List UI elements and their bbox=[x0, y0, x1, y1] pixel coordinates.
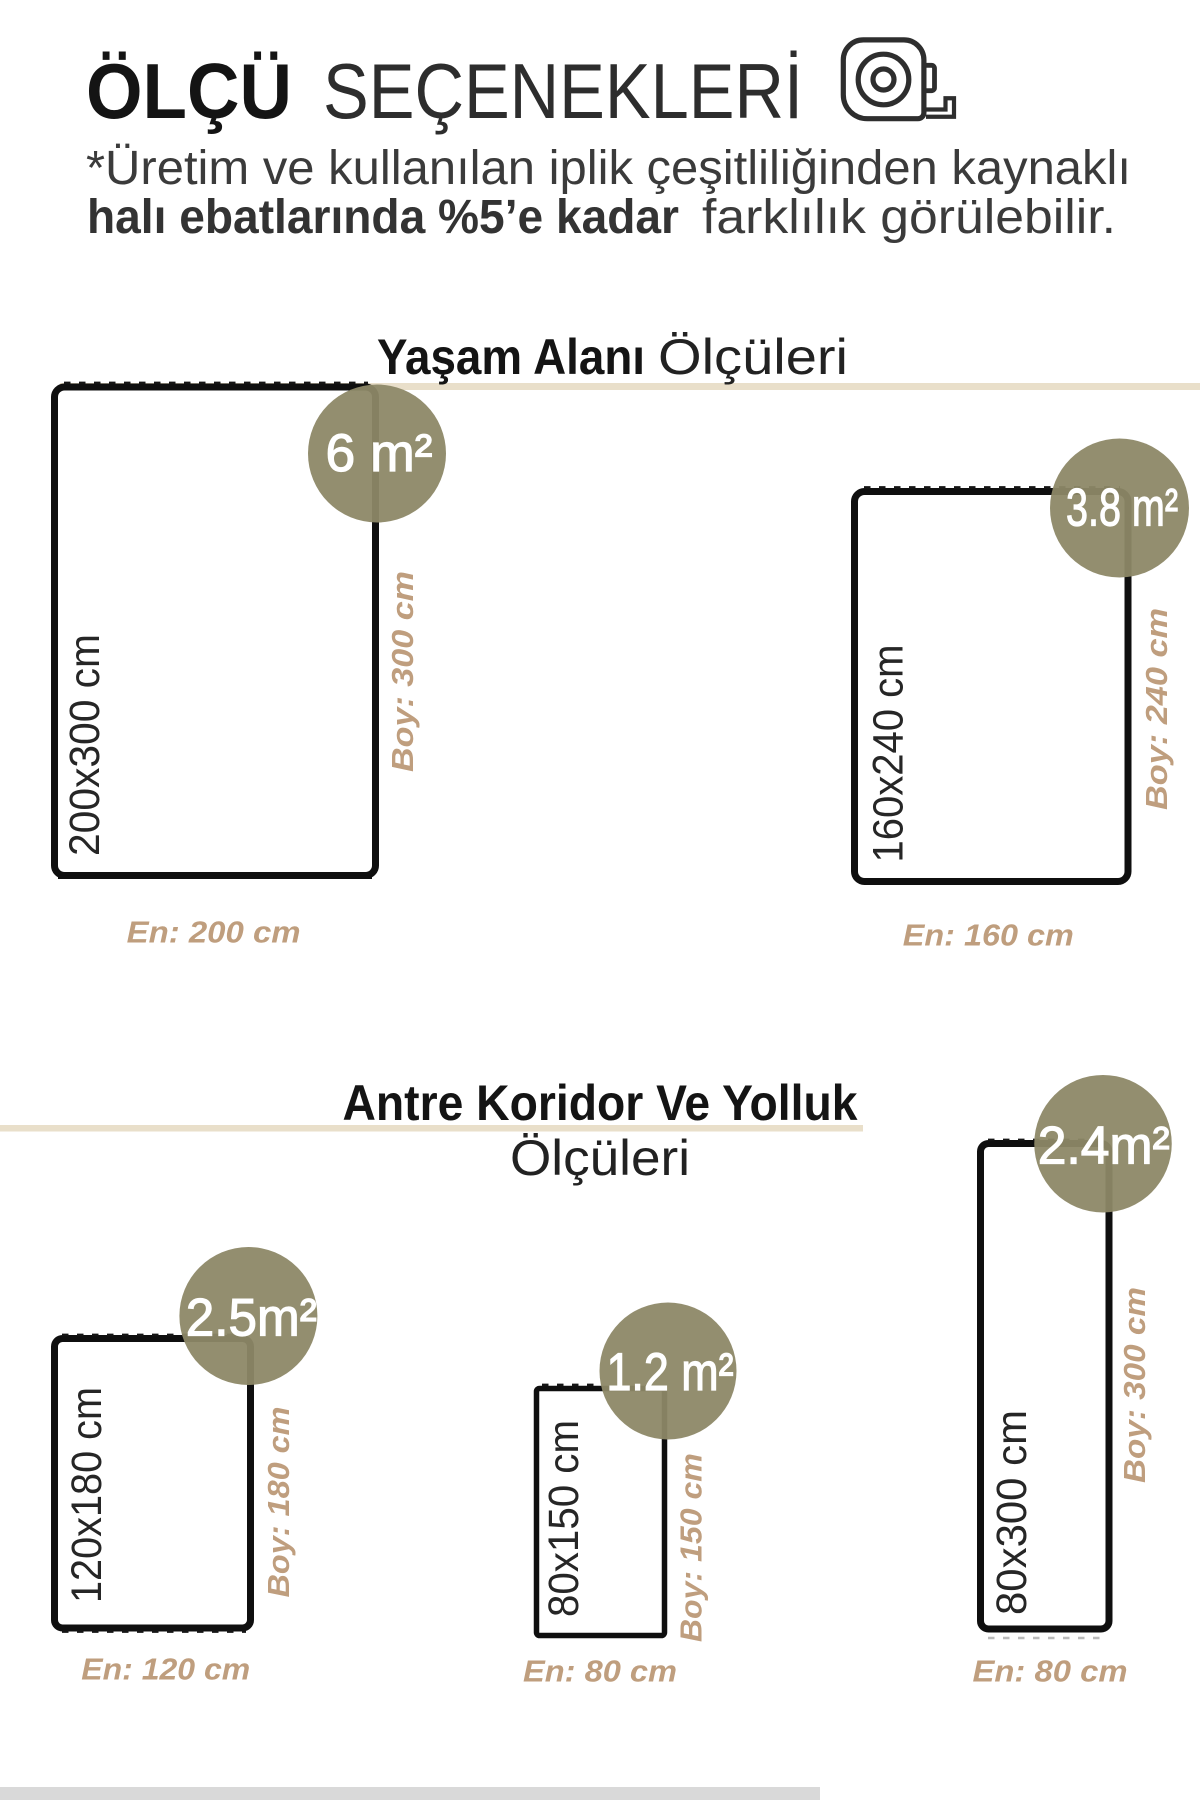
svg-text:120x180 cm: 120x180 cm bbox=[64, 1387, 111, 1603]
svg-text:Boy: 240 cm: Boy: 240 cm bbox=[1139, 608, 1174, 810]
svg-text:6 m²: 6 m² bbox=[326, 424, 433, 483]
svg-text:80x150 cm: 80x150 cm bbox=[541, 1420, 588, 1617]
svg-text:halı ebatlarında %5’e kadar: halı ebatlarında %5’e kadar bbox=[87, 191, 679, 244]
svg-text:2.5m²: 2.5m² bbox=[186, 1289, 317, 1348]
svg-text:ÖLÇÜ: ÖLÇÜ bbox=[86, 47, 292, 135]
svg-text:3.8 m²: 3.8 m² bbox=[1066, 479, 1178, 538]
svg-text:1.2 m²: 1.2 m² bbox=[607, 1343, 734, 1402]
svg-text:2.4m²: 2.4m² bbox=[1038, 1117, 1170, 1176]
svg-text:SEÇENEKLERİ: SEÇENEKLERİ bbox=[323, 47, 803, 135]
svg-text:*Üretim ve kullanılan iplik çe: *Üretim ve kullanılan iplik çeşitliliğin… bbox=[86, 142, 1131, 195]
svg-text:En: 80 cm: En: 80 cm bbox=[973, 1654, 1128, 1689]
svg-text:Yaşam Alanı: Yaşam Alanı bbox=[377, 329, 645, 385]
svg-text:En: 160 cm: En: 160 cm bbox=[903, 918, 1074, 953]
svg-text:200x300 cm: 200x300 cm bbox=[62, 634, 109, 856]
svg-text:Boy: 300 cm: Boy: 300 cm bbox=[385, 571, 420, 772]
svg-text:Antre Koridor Ve Yolluk: Antre Koridor Ve Yolluk bbox=[343, 1075, 858, 1131]
svg-text:Boy: 150 cm: Boy: 150 cm bbox=[674, 1453, 709, 1642]
svg-text:Boy: 180 cm: Boy: 180 cm bbox=[261, 1407, 296, 1598]
svg-text:Boy: 300 cm: Boy: 300 cm bbox=[1117, 1287, 1152, 1483]
svg-text:80x300 cm: 80x300 cm bbox=[989, 1410, 1036, 1615]
svg-text:farklılık görülebilir.: farklılık görülebilir. bbox=[702, 191, 1116, 244]
svg-text:En: 200 cm: En: 200 cm bbox=[127, 915, 301, 950]
svg-text:Ölçüleri: Ölçüleri bbox=[658, 329, 848, 385]
svg-text:Ölçüleri: Ölçüleri bbox=[510, 1130, 690, 1186]
svg-text:160x240 cm: 160x240 cm bbox=[866, 645, 913, 863]
svg-text:En: 80 cm: En: 80 cm bbox=[523, 1654, 677, 1689]
svg-text:En: 120 cm: En: 120 cm bbox=[81, 1652, 250, 1687]
